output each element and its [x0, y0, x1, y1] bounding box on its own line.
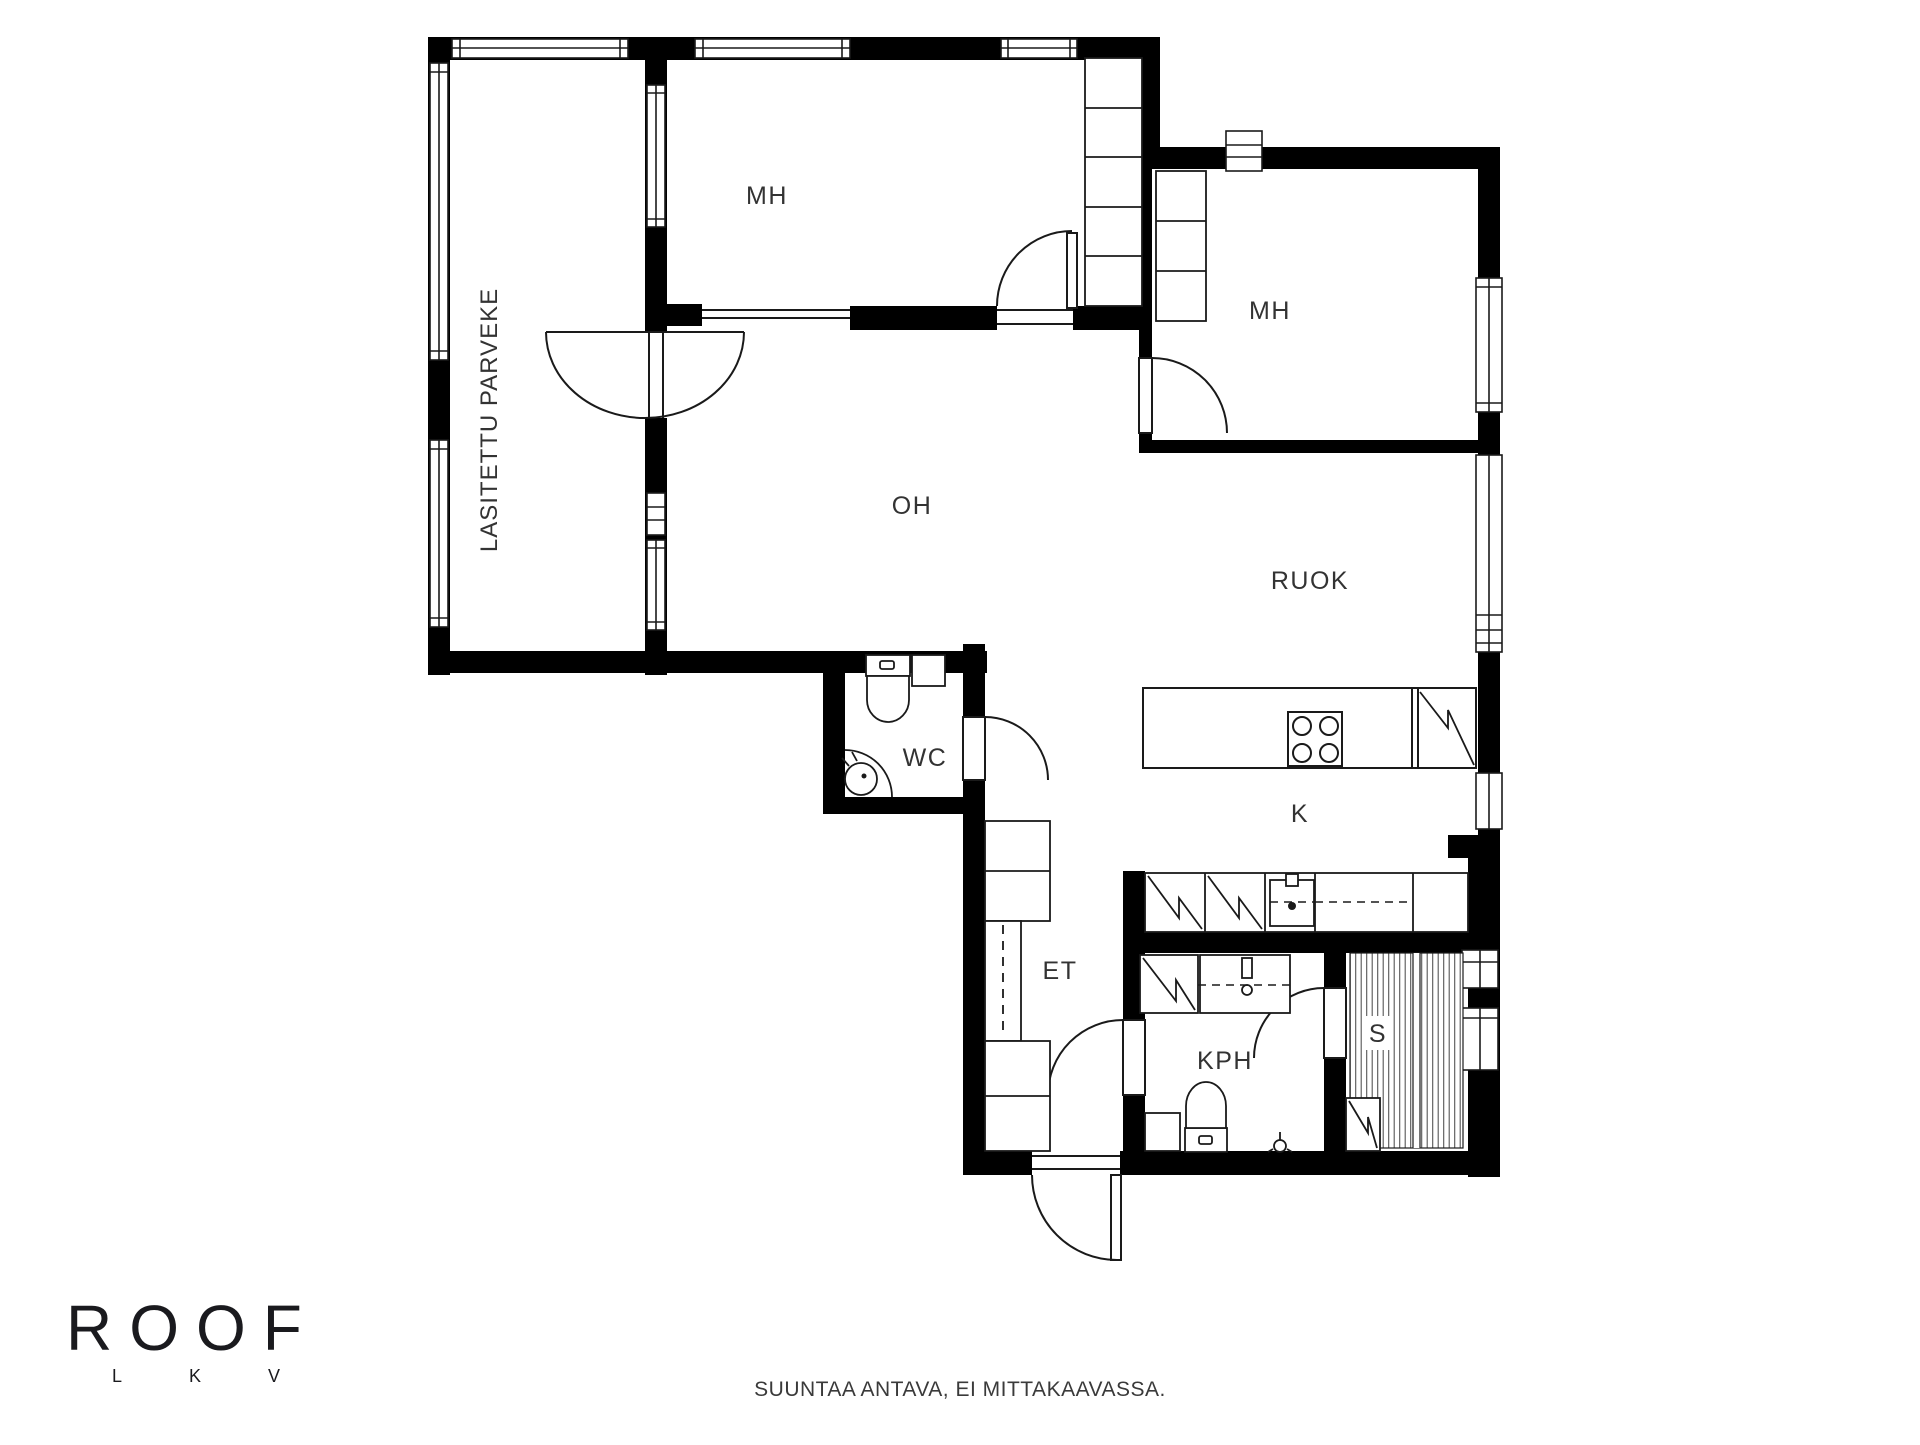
sauna-fixtures	[1346, 953, 1463, 1151]
label-balcony: LASITETTU PARVEKE	[476, 288, 503, 552]
door-entrance	[1032, 1151, 1121, 1260]
closet-et-lower	[985, 1041, 1050, 1151]
door-mh2	[1139, 358, 1227, 433]
kitchen-sink-icon	[1270, 874, 1314, 926]
wall-mh2-bottom	[1139, 440, 1478, 453]
window-balcony-oh-small	[647, 493, 665, 535]
window-sauna-right-1	[1462, 950, 1498, 988]
floor-drain-icon	[1268, 1132, 1292, 1152]
wall-mh2-top	[1139, 147, 1500, 169]
toilet-icon	[866, 655, 910, 722]
wall-mh1-bottom-a	[850, 306, 997, 330]
corner-sink-icon	[842, 750, 892, 797]
kph-bench	[1145, 1113, 1180, 1151]
window-balcony-mh1	[647, 85, 665, 227]
window-k-right	[1476, 773, 1502, 829]
label-ruok: RUOK	[1271, 567, 1349, 595]
wc-fixtures	[842, 655, 945, 797]
label-k: K	[1291, 800, 1309, 828]
door-kph	[1048, 1020, 1145, 1095]
wall-right-step	[1448, 835, 1500, 858]
label-kph: KPH	[1197, 1047, 1253, 1075]
closet-mh2	[1156, 171, 1206, 321]
wall-kph-sauna	[1324, 953, 1346, 1175]
closet-et-upper	[985, 821, 1050, 921]
partition-mh1-thin	[702, 310, 850, 318]
wall-wc-left	[823, 651, 845, 814]
kitchen-counter	[1145, 873, 1468, 932]
window-mh1-top-2	[1001, 39, 1077, 58]
shower-icon	[1140, 955, 1198, 1013]
door-balcony	[546, 332, 744, 418]
stove-icon	[1288, 712, 1342, 766]
label-et: ET	[1043, 957, 1078, 985]
wall-mh1-bottom-stub	[667, 304, 702, 326]
label-wc: WC	[903, 744, 948, 772]
label-oh: OH	[892, 492, 933, 520]
brand-logo: ROOF L K V	[66, 1296, 346, 1387]
window-mh1-top-1	[695, 39, 850, 58]
toilet-icon	[1185, 1082, 1227, 1152]
door-mh1	[997, 231, 1077, 330]
floor-plan: LASITETTU PARVEKE MH MH OH RUOK K WC ET …	[0, 0, 1920, 1440]
label-mh1: MH	[746, 182, 788, 210]
closet-et-wardrobe	[985, 921, 1021, 1041]
window-balcony-oh	[647, 540, 665, 630]
door-wc	[963, 717, 1048, 780]
wall-k-kph	[1123, 931, 1493, 953]
window-balcony-left-2	[430, 440, 448, 627]
sauna-heater-icon	[1346, 1098, 1380, 1151]
closet-mh1	[1085, 58, 1142, 306]
window-mh2-right	[1476, 278, 1502, 412]
brand-name: ROOF	[66, 1296, 346, 1360]
disclaimer-text: SUUNTAA ANTAVA, EI MITTAKAAVASSA.	[0, 1378, 1920, 1402]
window-mh2-top-small	[1226, 131, 1262, 171]
sink-icon	[1198, 955, 1292, 1013]
window-balcony-top	[452, 39, 628, 58]
wall-wc-bottom	[823, 797, 985, 814]
window-balcony-left-1	[430, 63, 448, 360]
window-sauna-right-2	[1462, 1008, 1498, 1070]
label-mh2: MH	[1249, 297, 1291, 325]
label-s: S	[1369, 1020, 1387, 1048]
window-ruok-right	[1476, 455, 1502, 652]
kitchen-island	[1143, 688, 1476, 768]
wc-cabinet	[912, 655, 945, 686]
